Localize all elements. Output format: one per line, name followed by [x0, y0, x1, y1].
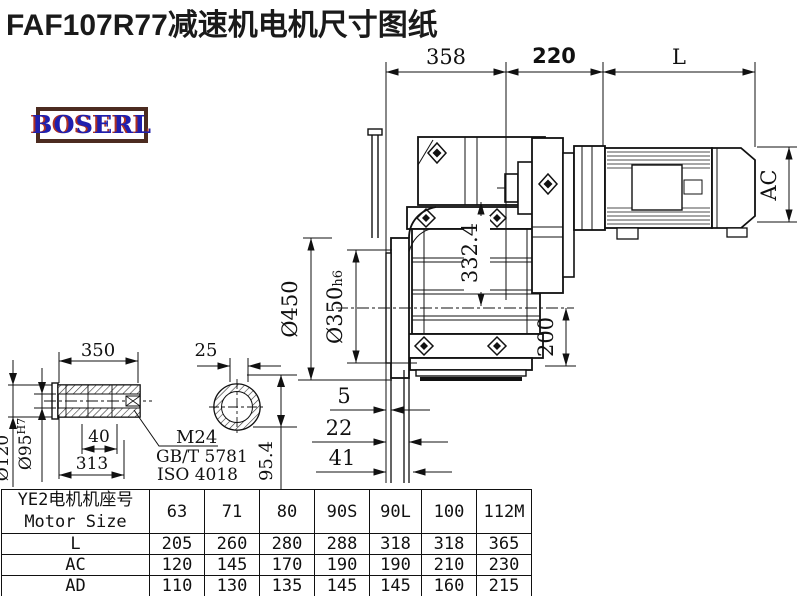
cell-AC-90s: 190 — [315, 555, 370, 576]
cell-AD-80: 135 — [260, 576, 315, 596]
cell-L-112m: 365 — [477, 534, 532, 555]
dim-label-40: 40 — [88, 427, 110, 447]
cell-AD-90l: 145 — [370, 576, 422, 596]
standard-label-gb: GB/T 5781 — [156, 447, 248, 467]
cell-AC-80: 170 — [260, 555, 315, 576]
cell-AD-100: 160 — [422, 576, 477, 596]
cell-L-90l: 318 — [370, 534, 422, 555]
standard-label-iso: ISO 4018 — [157, 465, 238, 485]
row-label-L: L — [2, 534, 150, 555]
dim-label-350len: 350 — [81, 340, 115, 361]
motor-assembly — [497, 138, 755, 293]
dim-label-AC: AC — [757, 169, 781, 201]
cell-AC-100: 210 — [422, 555, 477, 576]
dim-label-358: 358 — [426, 45, 466, 69]
table-header-row: YE2电机机座号 Motor Size 63 71 80 90S 90L 100… — [2, 490, 532, 534]
size-col-100: 100 — [422, 490, 477, 534]
cell-AC-112m: 230 — [477, 555, 532, 576]
row-label-AC: AC — [2, 555, 150, 576]
cell-L-100: 318 — [422, 534, 477, 555]
cell-L-63: 205 — [150, 534, 205, 555]
cell-AD-63: 110 — [150, 576, 205, 596]
dim-label-41: 41 — [329, 446, 356, 470]
dim-label-313: 313 — [76, 454, 108, 474]
table-row-AD: AD 110 130 135 145 145 160 215 — [2, 576, 532, 596]
size-col-63: 63 — [150, 490, 205, 534]
cell-AC-90l: 190 — [370, 555, 422, 576]
dim-label-200: 200 — [534, 317, 558, 357]
hollow-shaft-detail — [44, 379, 266, 446]
size-col-112m: 112M — [477, 490, 532, 534]
cell-AD-112m: 215 — [477, 576, 532, 596]
drawing-sheet: FAF107R77减速机电机尺寸图纸 BOSERL — [0, 0, 800, 596]
size-col-71: 71 — [205, 490, 260, 534]
cell-AC-63: 120 — [150, 555, 205, 576]
dim-label-332: 332.4 — [458, 223, 482, 283]
dim-label-22: 22 — [326, 416, 353, 440]
table-header-en: Motor Size — [2, 512, 149, 533]
cell-L-90s: 288 — [315, 534, 370, 555]
cell-L-80: 280 — [260, 534, 315, 555]
dim-label-95h7: Ø95H7 — [15, 418, 36, 470]
dim-label-220: 220 — [532, 44, 576, 68]
table-row-AC: AC 120 145 170 190 190 210 230 — [2, 555, 532, 576]
table-header-cell: YE2电机机座号 Motor Size — [2, 490, 150, 534]
cell-AD-90s: 145 — [315, 576, 370, 596]
cell-AC-71: 145 — [205, 555, 260, 576]
dim-label-5: 5 — [337, 384, 350, 408]
dim-label-350h6: Ø350h6 — [323, 270, 347, 344]
dim-label-120: Ø120 — [0, 435, 13, 481]
size-col-90s: 90S — [315, 490, 370, 534]
size-col-80: 80 — [260, 490, 315, 534]
dim-label-25: 25 — [195, 340, 218, 361]
motor-size-table: YE2电机机座号 Motor Size 63 71 80 90S 90L 100… — [1, 489, 532, 596]
cell-L-71: 260 — [205, 534, 260, 555]
table-row-L: L 205 260 280 288 318 318 365 — [2, 534, 532, 555]
dim-label-450: Ø450 — [278, 280, 302, 337]
dim-label-95-4: 95.4 — [256, 441, 277, 481]
dim-label-L: L — [672, 45, 686, 69]
thread-label-m24: M24 — [176, 427, 217, 448]
table-header-cn: YE2电机机座号 — [2, 490, 149, 511]
size-col-90l: 90L — [370, 490, 422, 534]
cell-AD-71: 130 — [205, 576, 260, 596]
row-label-AD: AD — [2, 576, 150, 596]
